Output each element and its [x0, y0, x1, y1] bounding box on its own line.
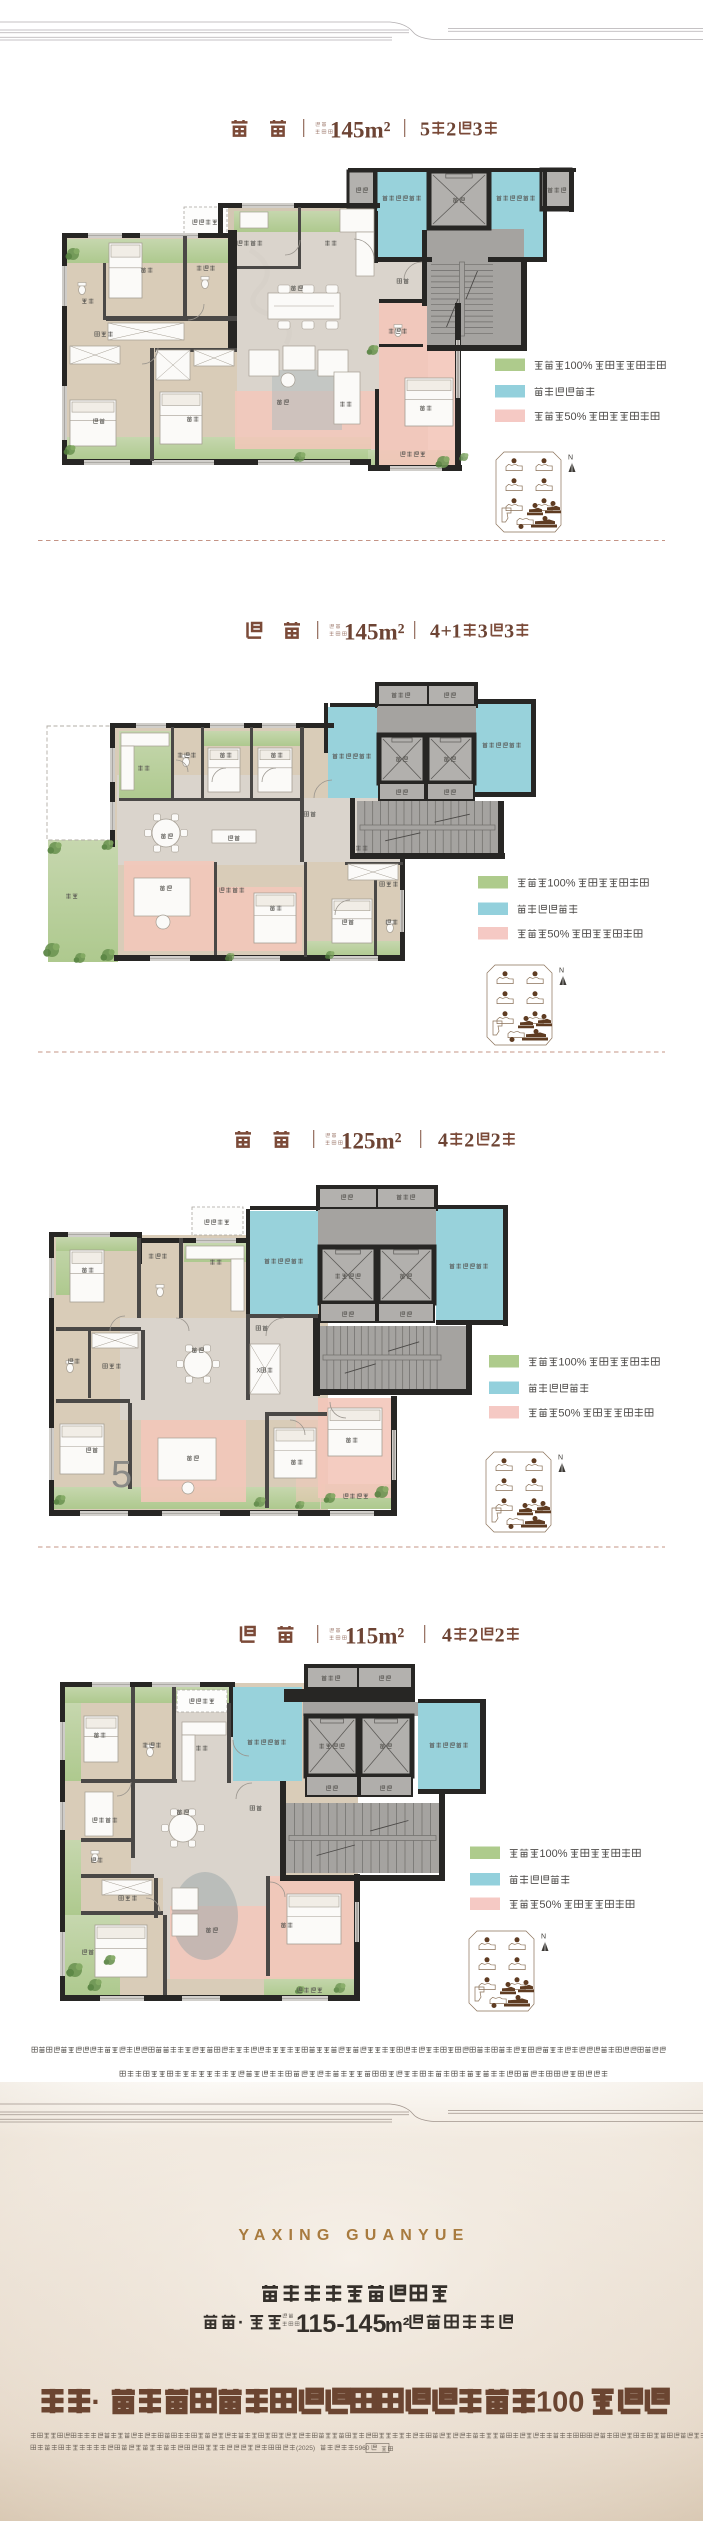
svg-text:5960: 5960	[355, 2445, 370, 2452]
svg-text:N: N	[541, 1934, 546, 1941]
svg-text:115-145: 115-145	[296, 2310, 386, 2338]
svg-text:2: 2	[491, 1130, 501, 1152]
svg-text:100: 100	[536, 2387, 584, 2419]
svg-text:100%: 100%	[539, 1848, 567, 1860]
svg-text:3: 3	[504, 621, 514, 643]
svg-text:(2025): (2025)	[296, 2445, 315, 2452]
svg-text:2: 2	[464, 1130, 474, 1152]
svg-text:2: 2	[468, 1625, 478, 1647]
svg-text:50%: 50%	[539, 1899, 561, 1911]
svg-text:N: N	[568, 455, 573, 462]
svg-text:100%: 100%	[564, 360, 592, 372]
svg-text:m²: m²	[385, 2315, 410, 2337]
svg-text:N: N	[559, 968, 564, 975]
svg-text:+: +	[441, 621, 452, 643]
svg-text:2: 2	[446, 119, 456, 141]
svg-text:X: X	[256, 1367, 260, 1374]
svg-text:5: 5	[111, 1454, 132, 1496]
svg-text:·: ·	[91, 2387, 101, 2419]
svg-text:4: 4	[438, 1130, 448, 1152]
svg-text:100%: 100%	[547, 877, 575, 889]
svg-text:·: ·	[238, 2312, 244, 2332]
svg-text:YAXING GUANYUE: YAXING GUANYUE	[238, 2227, 469, 2244]
svg-text:50%: 50%	[547, 928, 569, 940]
svg-text:115m²: 115m²	[345, 1624, 404, 1649]
svg-text:4: 4	[442, 1625, 452, 1647]
svg-text:N: N	[558, 1455, 563, 1462]
svg-text:5: 5	[420, 119, 430, 141]
svg-text:4: 4	[430, 621, 440, 643]
svg-text:3: 3	[473, 119, 483, 141]
svg-text:100%: 100%	[558, 1356, 586, 1368]
svg-text:3: 3	[478, 621, 488, 643]
svg-text:125m²: 125m²	[341, 1129, 402, 1154]
svg-text:145m²: 145m²	[344, 620, 405, 645]
svg-text:2: 2	[495, 1625, 505, 1647]
svg-text:50%: 50%	[564, 411, 586, 423]
svg-text:145m²: 145m²	[330, 118, 391, 143]
svg-text:50%: 50%	[558, 1407, 580, 1419]
svg-text:1: 1	[452, 621, 462, 643]
